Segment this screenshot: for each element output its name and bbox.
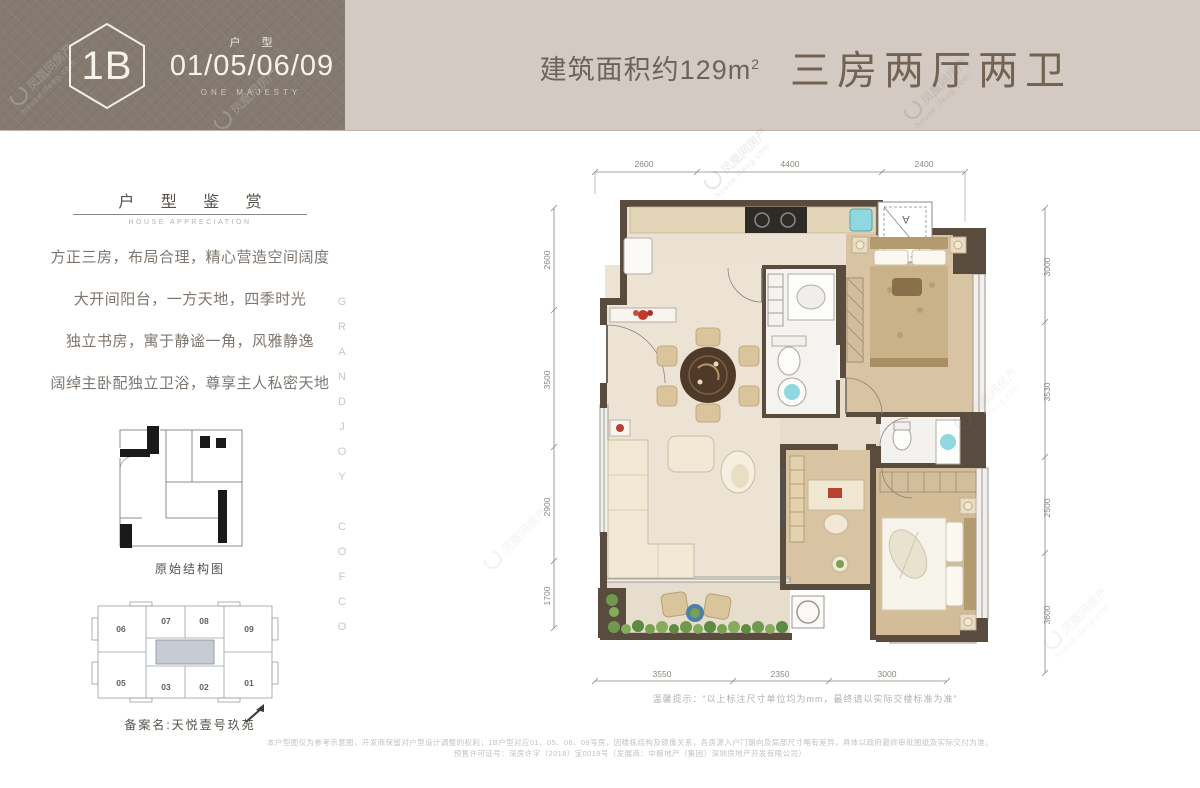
type-label: 户 型 — [186, 34, 316, 50]
bookshelf — [790, 456, 804, 542]
dim-label: 2500 — [1042, 498, 1052, 517]
unit-code: 1B — [66, 44, 148, 89]
dim-label: 4400 — [781, 159, 800, 169]
feature-line: 方正三房，布局合理，精心营造空间阔度 — [10, 246, 370, 267]
page: 1B 户 型 01/05/06/09 ONE MAJESTY 凤凰网房产 hou… — [0, 0, 1200, 788]
keyplan-unit: 03 — [161, 682, 171, 692]
entry-sideboard — [610, 308, 676, 322]
dim-label: 3000 — [878, 669, 897, 679]
unit-badge: 1B — [66, 22, 148, 110]
layout-title: 三房两厅两卫 — [790, 38, 1190, 96]
bedroom-2 — [880, 468, 976, 630]
dim-label: 2400 — [915, 159, 934, 169]
structure-caption: 原始结构图 — [30, 560, 350, 577]
dim-label: 1700 — [542, 586, 552, 605]
disclaimer: 本户型图仅为参考示意图，开发商保留对户型设计调整的权利；1B户型对应01、05、… — [120, 737, 1140, 759]
dim-label: 3000 — [1042, 257, 1052, 276]
brand-swirl-icon — [6, 83, 31, 108]
dim-label: 3500 — [542, 370, 552, 389]
dim-label: 3600 — [1042, 605, 1052, 624]
keyplan-unit: 06 — [116, 624, 126, 634]
disclaimer-line: 本户型图仅为参考示意图，开发商保留对户型设计调整的权利；1B户型对应01、05、… — [120, 737, 1140, 748]
section-title: 户 型 鉴 赏 — [30, 188, 350, 212]
floor-plan: A C — [540, 150, 1075, 710]
vertical-brand-text: GRANDJOY COFCO — [336, 296, 348, 646]
disclaimer-line: 预售许可证号：深房许字（2018）宝0019号（发展商：中粮地产（集团）深圳房地… — [120, 748, 1140, 759]
keyplan-unit: 07 — [161, 616, 171, 626]
washing-machine — [792, 596, 824, 628]
wardrobe — [847, 278, 863, 362]
keyplan-caption: 备案名:天悦壹号玖苑 — [30, 716, 350, 733]
ac-letter: A — [902, 213, 910, 225]
keyplan-unit: 05 — [116, 678, 126, 688]
built-area-text: 建筑面积约129m2 — [430, 48, 760, 87]
wardrobe-2 — [880, 472, 976, 492]
keyplan-unit: 09 — [244, 624, 254, 634]
brand-swirl-icon — [900, 97, 925, 122]
dim-label: 2600 — [542, 250, 552, 269]
divider — [73, 214, 307, 215]
dim-label: 3550 — [653, 669, 672, 679]
badge-subtitle: ONE MAJESTY — [186, 88, 316, 97]
feature-line: 独立书房，寓于静谧一角，风雅静逸 — [10, 330, 370, 351]
structure-diagram — [102, 418, 267, 556]
plan-note: 温馨提示：“以上标注尺寸单位均为mm，最终请以实际交楼标准为准” — [540, 692, 1070, 705]
keyplan-unit: 01 — [244, 678, 254, 688]
keyplan-unit: 08 — [199, 616, 209, 626]
dim-label: 2350 — [771, 669, 790, 679]
key-plan: 06 07 08 09 05 03 02 01 — [90, 600, 280, 712]
header-banner: 1B 户 型 01/05/06/09 ONE MAJESTY 凤凰网房产 hou… — [0, 0, 1200, 131]
keyplan-unit: 02 — [199, 682, 209, 692]
brand-swirl-icon — [480, 547, 505, 572]
dim-label: 2900 — [542, 497, 552, 516]
dim-label: 2600 — [635, 159, 654, 169]
feature-line: 阔绰主卧配独立卫浴，尊享主人私密天地 — [10, 372, 370, 393]
header-dark-panel: 1B 户 型 01/05/06/09 ONE MAJESTY 凤凰网房产 hou… — [0, 0, 345, 130]
dim-label: 3530 — [1042, 382, 1052, 401]
brand-swirl-icon — [210, 107, 235, 132]
feature-line: 大开间阳台，一方天地，四季时光 — [10, 288, 370, 309]
section-subtitle: HOUSE APPRECIATION — [30, 219, 350, 226]
unit-numbers: 01/05/06/09 — [152, 50, 352, 83]
